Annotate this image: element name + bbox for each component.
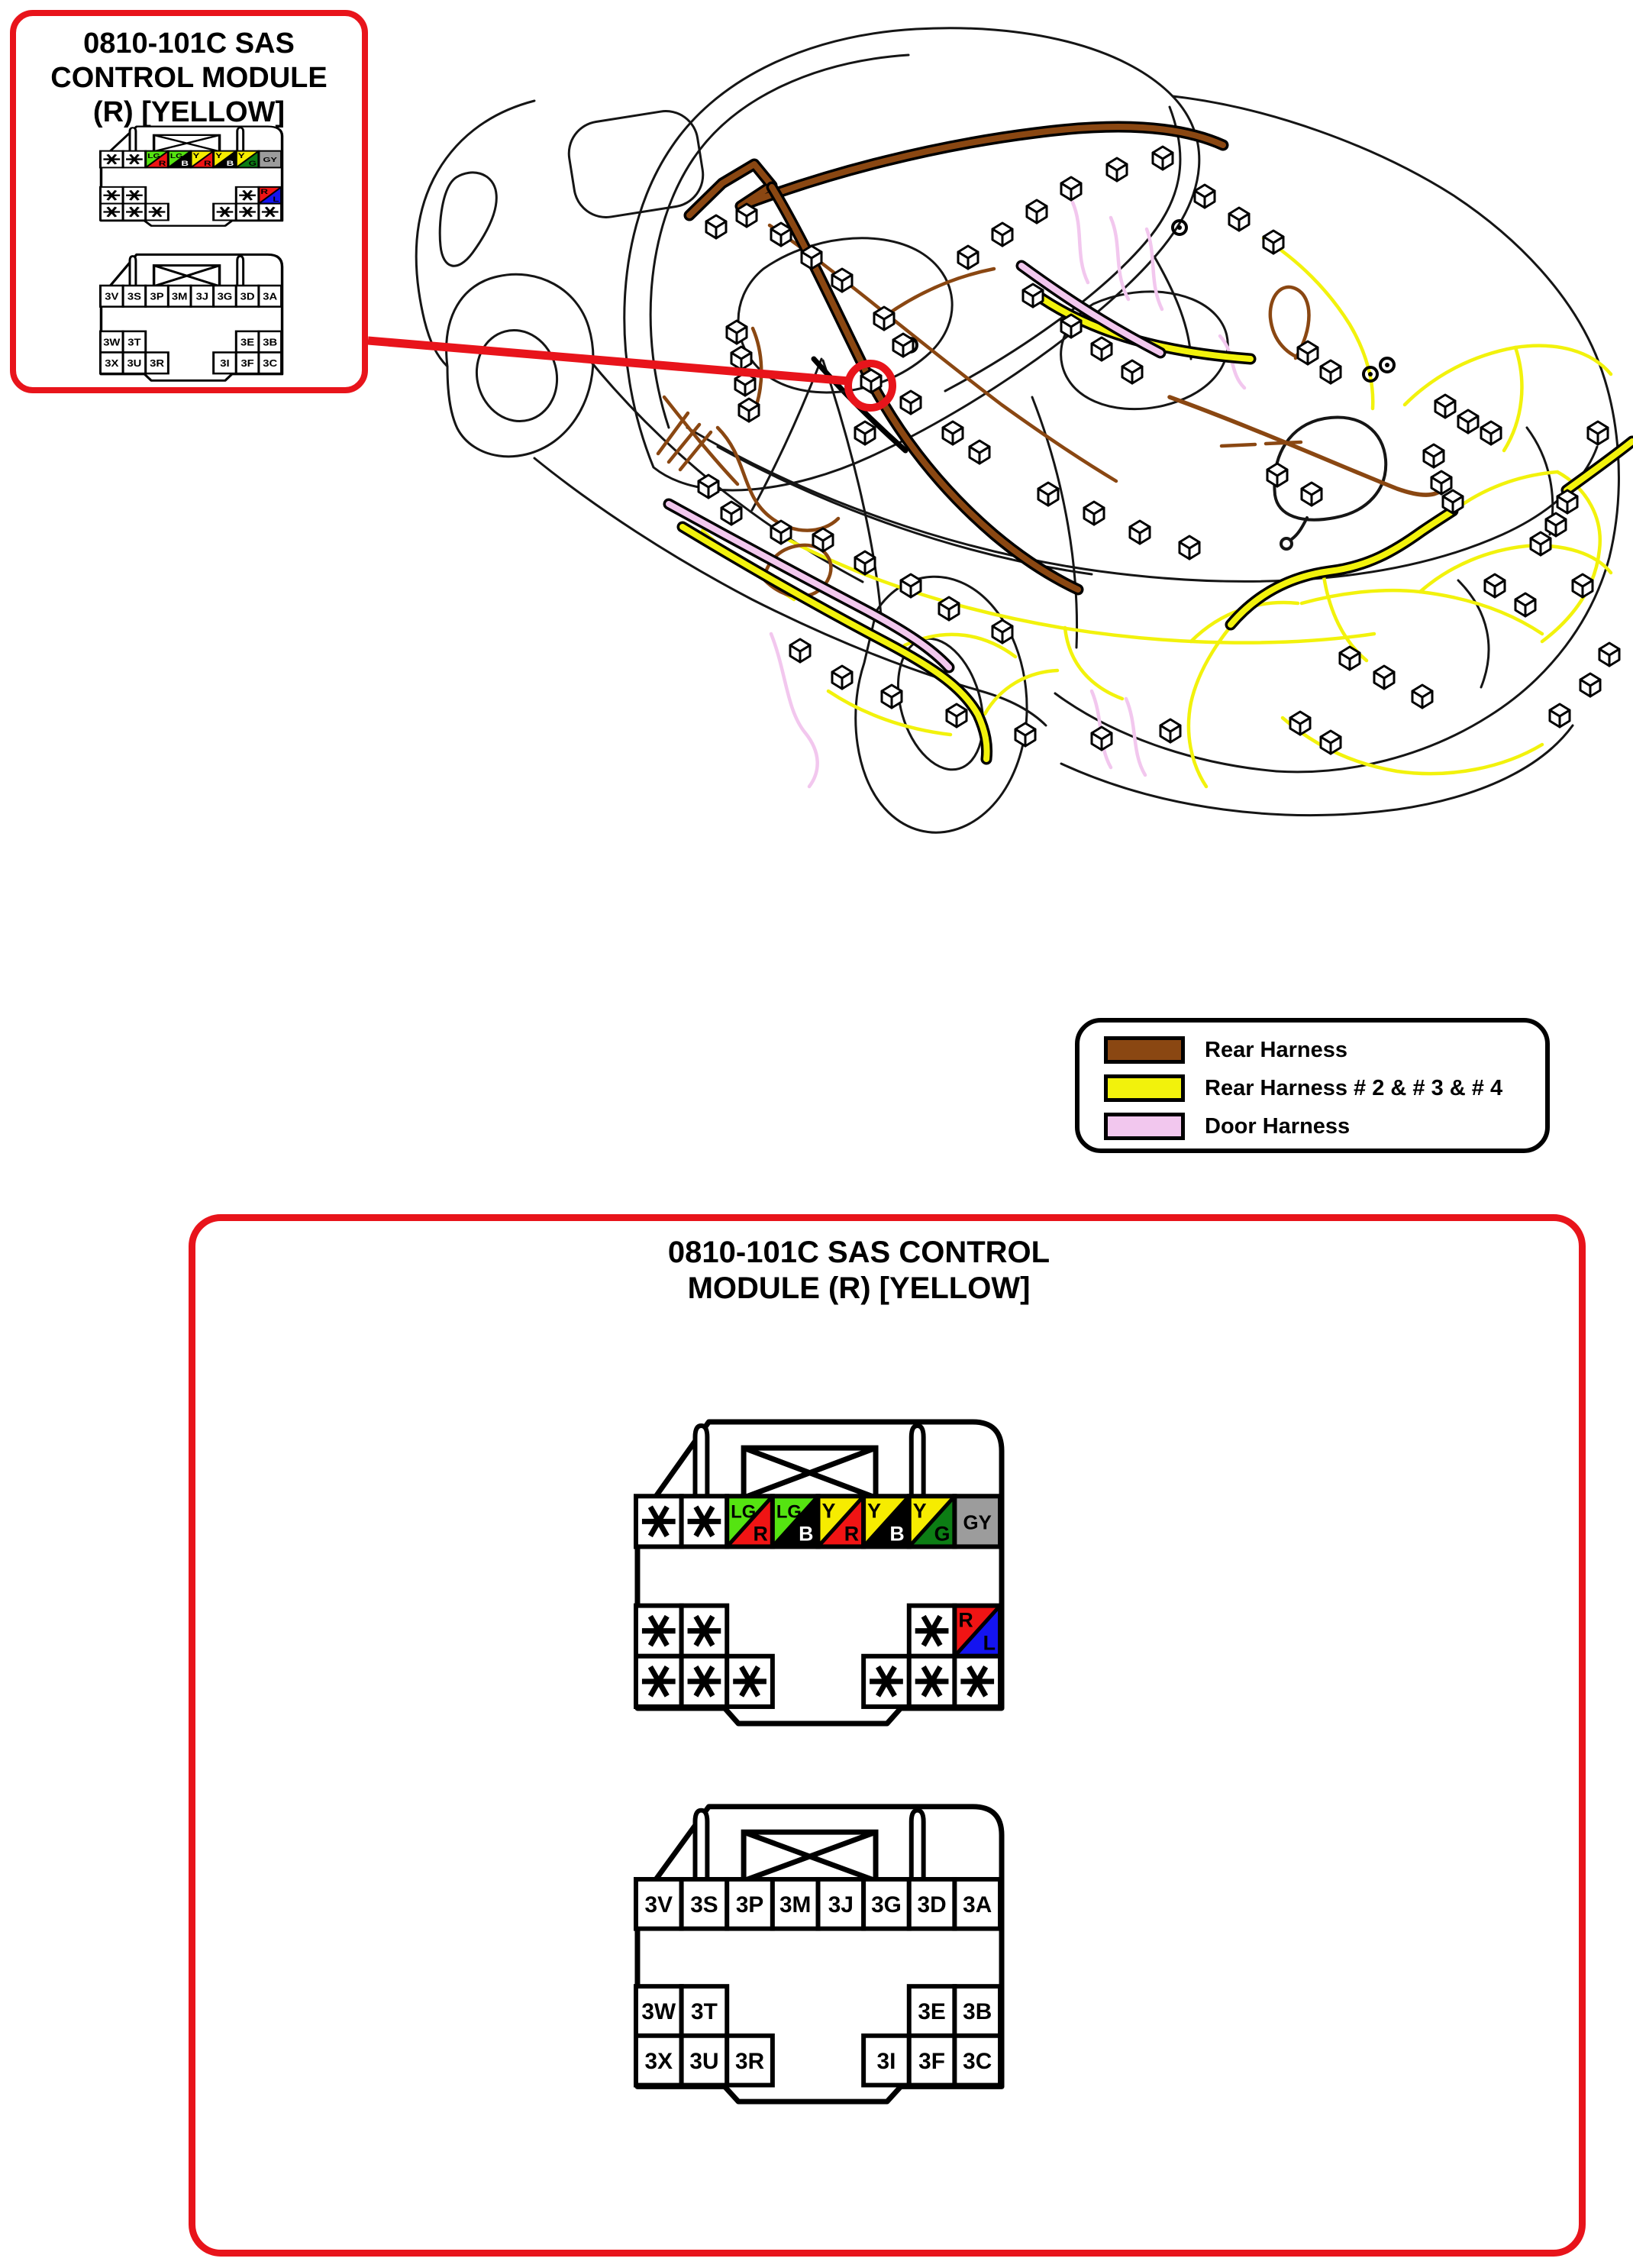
svg-text:3D: 3D xyxy=(240,291,255,302)
svg-text:B: B xyxy=(227,160,234,167)
svg-text:3F: 3F xyxy=(918,2049,945,2074)
svg-text:3J: 3J xyxy=(196,291,208,302)
upper-connector-svg: LGRLGBYRYBYGGYRL xyxy=(99,124,284,227)
svg-text:3P: 3P xyxy=(150,291,164,302)
lower-connector-svg: 3V3S3P3M3J3G3D3A3W3T3E3B3X3U3R3I3F3C xyxy=(99,252,284,382)
svg-text:GY: GY xyxy=(263,157,277,163)
svg-text:Y: Y xyxy=(238,153,245,160)
svg-text:3M: 3M xyxy=(779,1892,811,1917)
svg-text:3V: 3V xyxy=(645,1892,673,1917)
svg-text:3S: 3S xyxy=(127,291,141,302)
svg-text:3W: 3W xyxy=(103,337,120,347)
callout-title-line1: 0810-101C SAS xyxy=(16,27,362,61)
callout-title-line2: CONTROL MODULE xyxy=(16,61,362,95)
svg-text:3R: 3R xyxy=(150,358,164,369)
svg-text:Y: Y xyxy=(215,153,222,160)
svg-text:3T: 3T xyxy=(127,337,141,347)
svg-text:LG: LG xyxy=(731,1501,756,1522)
upper-connector-pinout-small: LGRLGBYRYBYGGYRL xyxy=(99,124,284,227)
svg-text:Y: Y xyxy=(867,1499,881,1522)
rear-harness-2-3-4-swatch xyxy=(1104,1074,1185,1102)
svg-text:B: B xyxy=(889,1522,904,1545)
svg-text:B: B xyxy=(181,160,189,167)
svg-text:3D: 3D xyxy=(918,1892,947,1917)
svg-text:3W: 3W xyxy=(641,1999,676,2024)
svg-text:3C: 3C xyxy=(263,358,277,369)
svg-text:Y: Y xyxy=(192,153,199,160)
svg-text:R: R xyxy=(754,1522,768,1545)
upper-connector-svg: LGRLGBYRYBYGGYRL xyxy=(634,1416,1005,1727)
wiring-diagram-page: { "top_box": { "title_lines": ["0810-101… xyxy=(0,0,1633,2268)
detail-title: 0810-101C SAS CONTROL MODULE (R) [YELLOW… xyxy=(195,1235,1579,1307)
svg-text:3A: 3A xyxy=(263,291,277,302)
svg-text:3B: 3B xyxy=(263,337,277,347)
svg-text:3M: 3M xyxy=(172,291,188,302)
svg-text:L: L xyxy=(273,196,279,203)
door-harness-label: Door Harness xyxy=(1205,1114,1350,1139)
callout-title: 0810-101C SAS CONTROL MODULE (R) [YELLOW… xyxy=(16,27,362,129)
svg-text:3P: 3P xyxy=(736,1892,763,1917)
svg-text:3F: 3F xyxy=(240,358,253,369)
svg-text:3C: 3C xyxy=(963,2049,992,2074)
car-harness-illustration xyxy=(336,15,1633,909)
legend-item-rear-harness: Rear Harness xyxy=(1080,1031,1545,1069)
svg-text:3X: 3X xyxy=(645,2049,673,2074)
svg-text:Y: Y xyxy=(821,1499,835,1522)
detail-title-line2: MODULE (R) [YELLOW] xyxy=(195,1271,1522,1307)
svg-text:3G: 3G xyxy=(871,1892,902,1917)
svg-text:R: R xyxy=(159,160,166,167)
svg-text:GY: GY xyxy=(963,1512,992,1533)
svg-text:3E: 3E xyxy=(918,1999,945,2024)
svg-text:3U: 3U xyxy=(689,2049,718,2074)
legend-item-door-harness: Door Harness xyxy=(1080,1107,1545,1145)
svg-text:3U: 3U xyxy=(127,358,141,369)
svg-text:3X: 3X xyxy=(105,358,119,369)
svg-text:3A: 3A xyxy=(963,1892,992,1917)
callout-leader-line xyxy=(368,341,849,381)
svg-text:3I: 3I xyxy=(220,358,229,369)
svg-text:3G: 3G xyxy=(218,291,233,302)
svg-text:3T: 3T xyxy=(691,1999,718,2024)
svg-text:B: B xyxy=(799,1522,813,1545)
svg-text:G: G xyxy=(249,160,257,167)
harness-legend: Rear HarnessRear Harness # 2 & # 3 & # 4… xyxy=(1075,1018,1550,1153)
lower-connector-svg: 3V3S3P3M3J3G3D3A3W3T3E3B3X3U3R3I3F3C xyxy=(634,1801,1005,2105)
detail-title-line1: 0810-101C SAS CONTROL xyxy=(195,1235,1522,1271)
svg-text:3E: 3E xyxy=(240,337,254,347)
rear-harness-label: Rear Harness xyxy=(1205,1038,1347,1063)
lower-connector-pinout-large: 3V3S3P3M3J3G3D3A3W3T3E3B3X3U3R3I3F3C xyxy=(634,1801,1005,2105)
rear-harness-swatch xyxy=(1104,1036,1185,1064)
svg-text:3B: 3B xyxy=(963,1999,992,2024)
legend-item-rear-harness-2-3-4: Rear Harness # 2 & # 3 & # 4 xyxy=(1080,1069,1545,1107)
svg-text:R: R xyxy=(260,189,268,195)
svg-text:R: R xyxy=(844,1522,859,1545)
svg-text:3R: 3R xyxy=(735,2049,764,2074)
svg-text:3J: 3J xyxy=(828,1892,854,1917)
svg-text:3I: 3I xyxy=(877,2049,896,2074)
svg-text:R: R xyxy=(204,160,211,167)
svg-text:L: L xyxy=(983,1632,996,1655)
rear-harness-2-3-4-label: Rear Harness # 2 & # 3 & # 4 xyxy=(1205,1076,1502,1101)
svg-text:R: R xyxy=(958,1609,973,1632)
door-harness-swatch xyxy=(1104,1113,1185,1140)
svg-text:3V: 3V xyxy=(105,291,119,302)
svg-text:LG: LG xyxy=(147,153,160,160)
svg-text:Y: Y xyxy=(913,1499,927,1522)
svg-text:LG: LG xyxy=(170,153,183,160)
upper-connector-pinout-large: LGRLGBYRYBYGGYRL xyxy=(634,1416,1005,1727)
svg-text:LG: LG xyxy=(776,1501,802,1522)
svg-text:3S: 3S xyxy=(690,1892,718,1917)
svg-text:G: G xyxy=(934,1522,950,1545)
lower-connector-pinout-small: 3V3S3P3M3J3G3D3A3W3T3E3B3X3U3R3I3F3C xyxy=(99,252,284,382)
